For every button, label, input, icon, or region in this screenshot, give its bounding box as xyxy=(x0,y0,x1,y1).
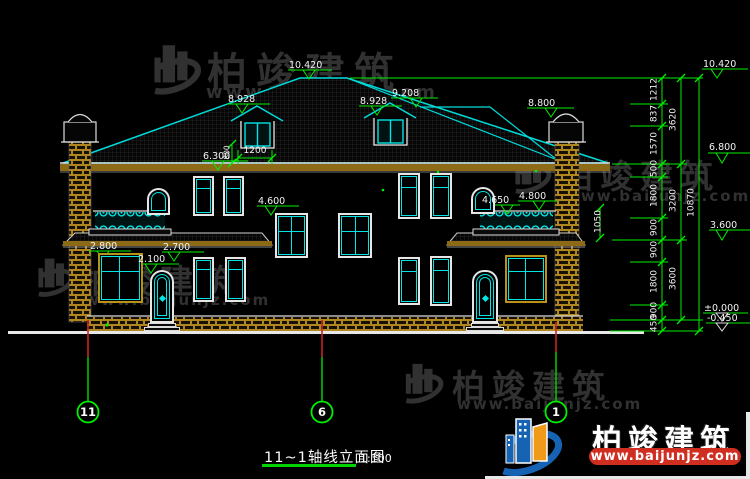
dim-subtotal: 3600 xyxy=(670,264,679,294)
brand-url-badge: www.baijunjz.com xyxy=(589,448,741,465)
window xyxy=(430,256,452,306)
elevation-label: 4.800 xyxy=(519,192,546,202)
dim-label: 1200 xyxy=(240,147,270,156)
dim-label: 500 xyxy=(651,154,660,184)
door-frame xyxy=(151,192,166,211)
window-sash xyxy=(228,260,243,299)
dim-label: 1050 xyxy=(595,207,604,237)
window xyxy=(225,257,246,302)
title-underline xyxy=(262,464,356,467)
dim-label: 450 xyxy=(651,309,660,339)
elevation-label: 9.208 xyxy=(392,89,419,99)
dim-label: 837 xyxy=(651,99,660,129)
elevation-label: 8.928 xyxy=(228,95,255,105)
elevation-label: 3.600 xyxy=(710,221,737,231)
axis-bubble-11: 11 xyxy=(77,405,99,421)
border-right xyxy=(746,412,750,479)
entry-door xyxy=(472,270,498,323)
window xyxy=(338,213,372,258)
dim-subtotal: 3200 xyxy=(670,186,679,216)
elevation-label: 2.700 xyxy=(163,243,190,253)
dim-label: 800 xyxy=(223,138,232,168)
elevation-label: 8.928 xyxy=(360,97,387,107)
window-sash xyxy=(226,179,241,213)
right-balcony xyxy=(473,211,559,235)
elevation-label: 6.800 xyxy=(709,143,736,153)
window xyxy=(193,257,214,302)
elevation-label: 2.800 xyxy=(90,242,117,252)
dim-label: 1800 xyxy=(651,267,660,297)
dim-subtotal: 3620 xyxy=(670,105,679,135)
main-roof xyxy=(60,78,610,172)
elevation-label: 8.800 xyxy=(528,99,555,109)
window-sash xyxy=(196,260,211,299)
window-sash xyxy=(401,176,417,216)
window xyxy=(398,257,420,305)
balcony-door xyxy=(147,188,170,215)
window-sash xyxy=(508,258,544,300)
left-chimney xyxy=(61,115,99,323)
elevation-label: 10.420 xyxy=(289,61,322,71)
elevation-label: 2.100 xyxy=(138,255,165,265)
window xyxy=(193,176,214,216)
elevation-label: 10.420 xyxy=(703,60,736,70)
window-sash xyxy=(433,176,449,216)
elevation-drawing xyxy=(0,0,750,479)
door-step xyxy=(466,327,504,331)
elevation-label: 4.600 xyxy=(258,197,285,207)
window-yellow-frame xyxy=(505,255,547,303)
window xyxy=(223,176,244,216)
drawing-scale: 1:100 xyxy=(360,452,392,465)
ground-line xyxy=(8,331,644,334)
window-sash xyxy=(401,260,417,302)
window xyxy=(275,213,308,258)
axis-bubble-6: 6 xyxy=(311,405,333,421)
dim-label: 900 xyxy=(651,235,660,265)
dim-label: 1800 xyxy=(651,181,660,211)
window-sash xyxy=(196,179,211,213)
window-yellow-frame xyxy=(98,253,143,303)
cad-elevation-screenshot: 柏竣建筑 www.baijunjz.com 柏竣建筑 www.baijunjz.… xyxy=(0,0,750,479)
window-sash xyxy=(101,256,140,300)
elevation-label: -0.450 xyxy=(707,314,738,324)
window-sash xyxy=(433,259,449,303)
brand-logo-icon xyxy=(490,413,568,477)
window xyxy=(398,173,420,219)
elevation-label: 4.650 xyxy=(482,196,509,206)
dim-total: 10870 xyxy=(688,188,697,218)
door-step xyxy=(144,327,180,331)
entry-door xyxy=(150,270,174,323)
window xyxy=(430,173,452,219)
